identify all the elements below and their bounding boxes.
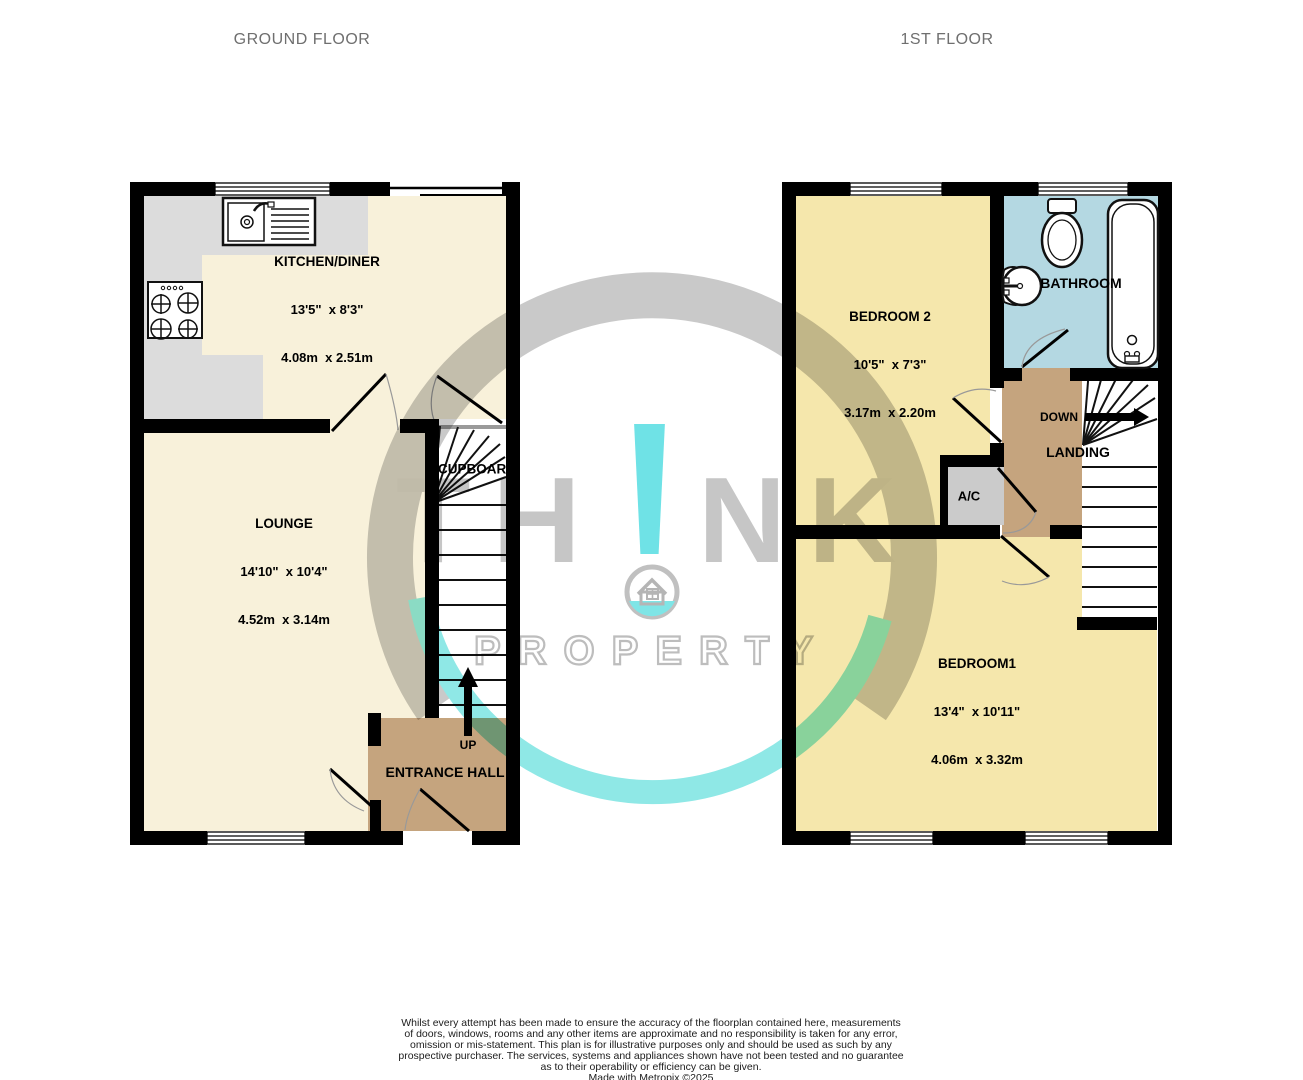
disclaimer: Whilst every attempt has been made to en… — [398, 1018, 903, 1080]
landing-label: LANDING — [1046, 444, 1110, 460]
kitchen-label: KITCHEN/DINER 13'5" x 8'3" 4.08m x 2.51m — [274, 222, 380, 398]
watermark-exclamation-icon — [632, 424, 667, 554]
watermark-brand-line2: PROPERTY — [474, 629, 830, 674]
disclaimer-line: as to their operability or efficiency ca… — [398, 1062, 903, 1073]
basin-icon — [1002, 267, 1041, 305]
up-label: UP — [460, 738, 477, 752]
metropix-credit: Made with Metropix ©2025 — [398, 1073, 903, 1080]
ground-floor-title: GROUND FLOOR — [234, 31, 371, 49]
bathroom-label: BATHROOM — [1040, 275, 1121, 291]
lounge-label: LOUNGE 14'10" x 10'4" 4.52m x 3.14m — [238, 484, 330, 660]
bedroom2-label: BEDROOM 2 10'5" x 7'3" 3.17m x 2.20m — [844, 277, 936, 453]
wall-opening-lines — [390, 188, 502, 195]
cupboard-label: CUPBOARD — [438, 462, 516, 477]
stove-icon — [148, 282, 202, 339]
house-icon — [638, 580, 666, 604]
entrance-hall-label: ENTRANCE HALL — [386, 764, 505, 780]
first-floor-title: 1ST FLOOR — [900, 31, 993, 49]
down-label: DOWN — [1040, 410, 1078, 424]
bedroom1-label: BEDROOM1 13'4" x 10'11" 4.06m x 3.32m — [931, 624, 1023, 800]
ac-label: A/C — [958, 489, 980, 504]
house-circle — [627, 567, 677, 617]
floorplan-page: GROUND FLOOR 1ST FLOOR — [0, 0, 1303, 1080]
toilet-icon — [1042, 199, 1082, 267]
house-circle-teal — [629, 601, 675, 616]
disclaimer-line: prospective purchaser. The services, sys… — [398, 1051, 903, 1062]
